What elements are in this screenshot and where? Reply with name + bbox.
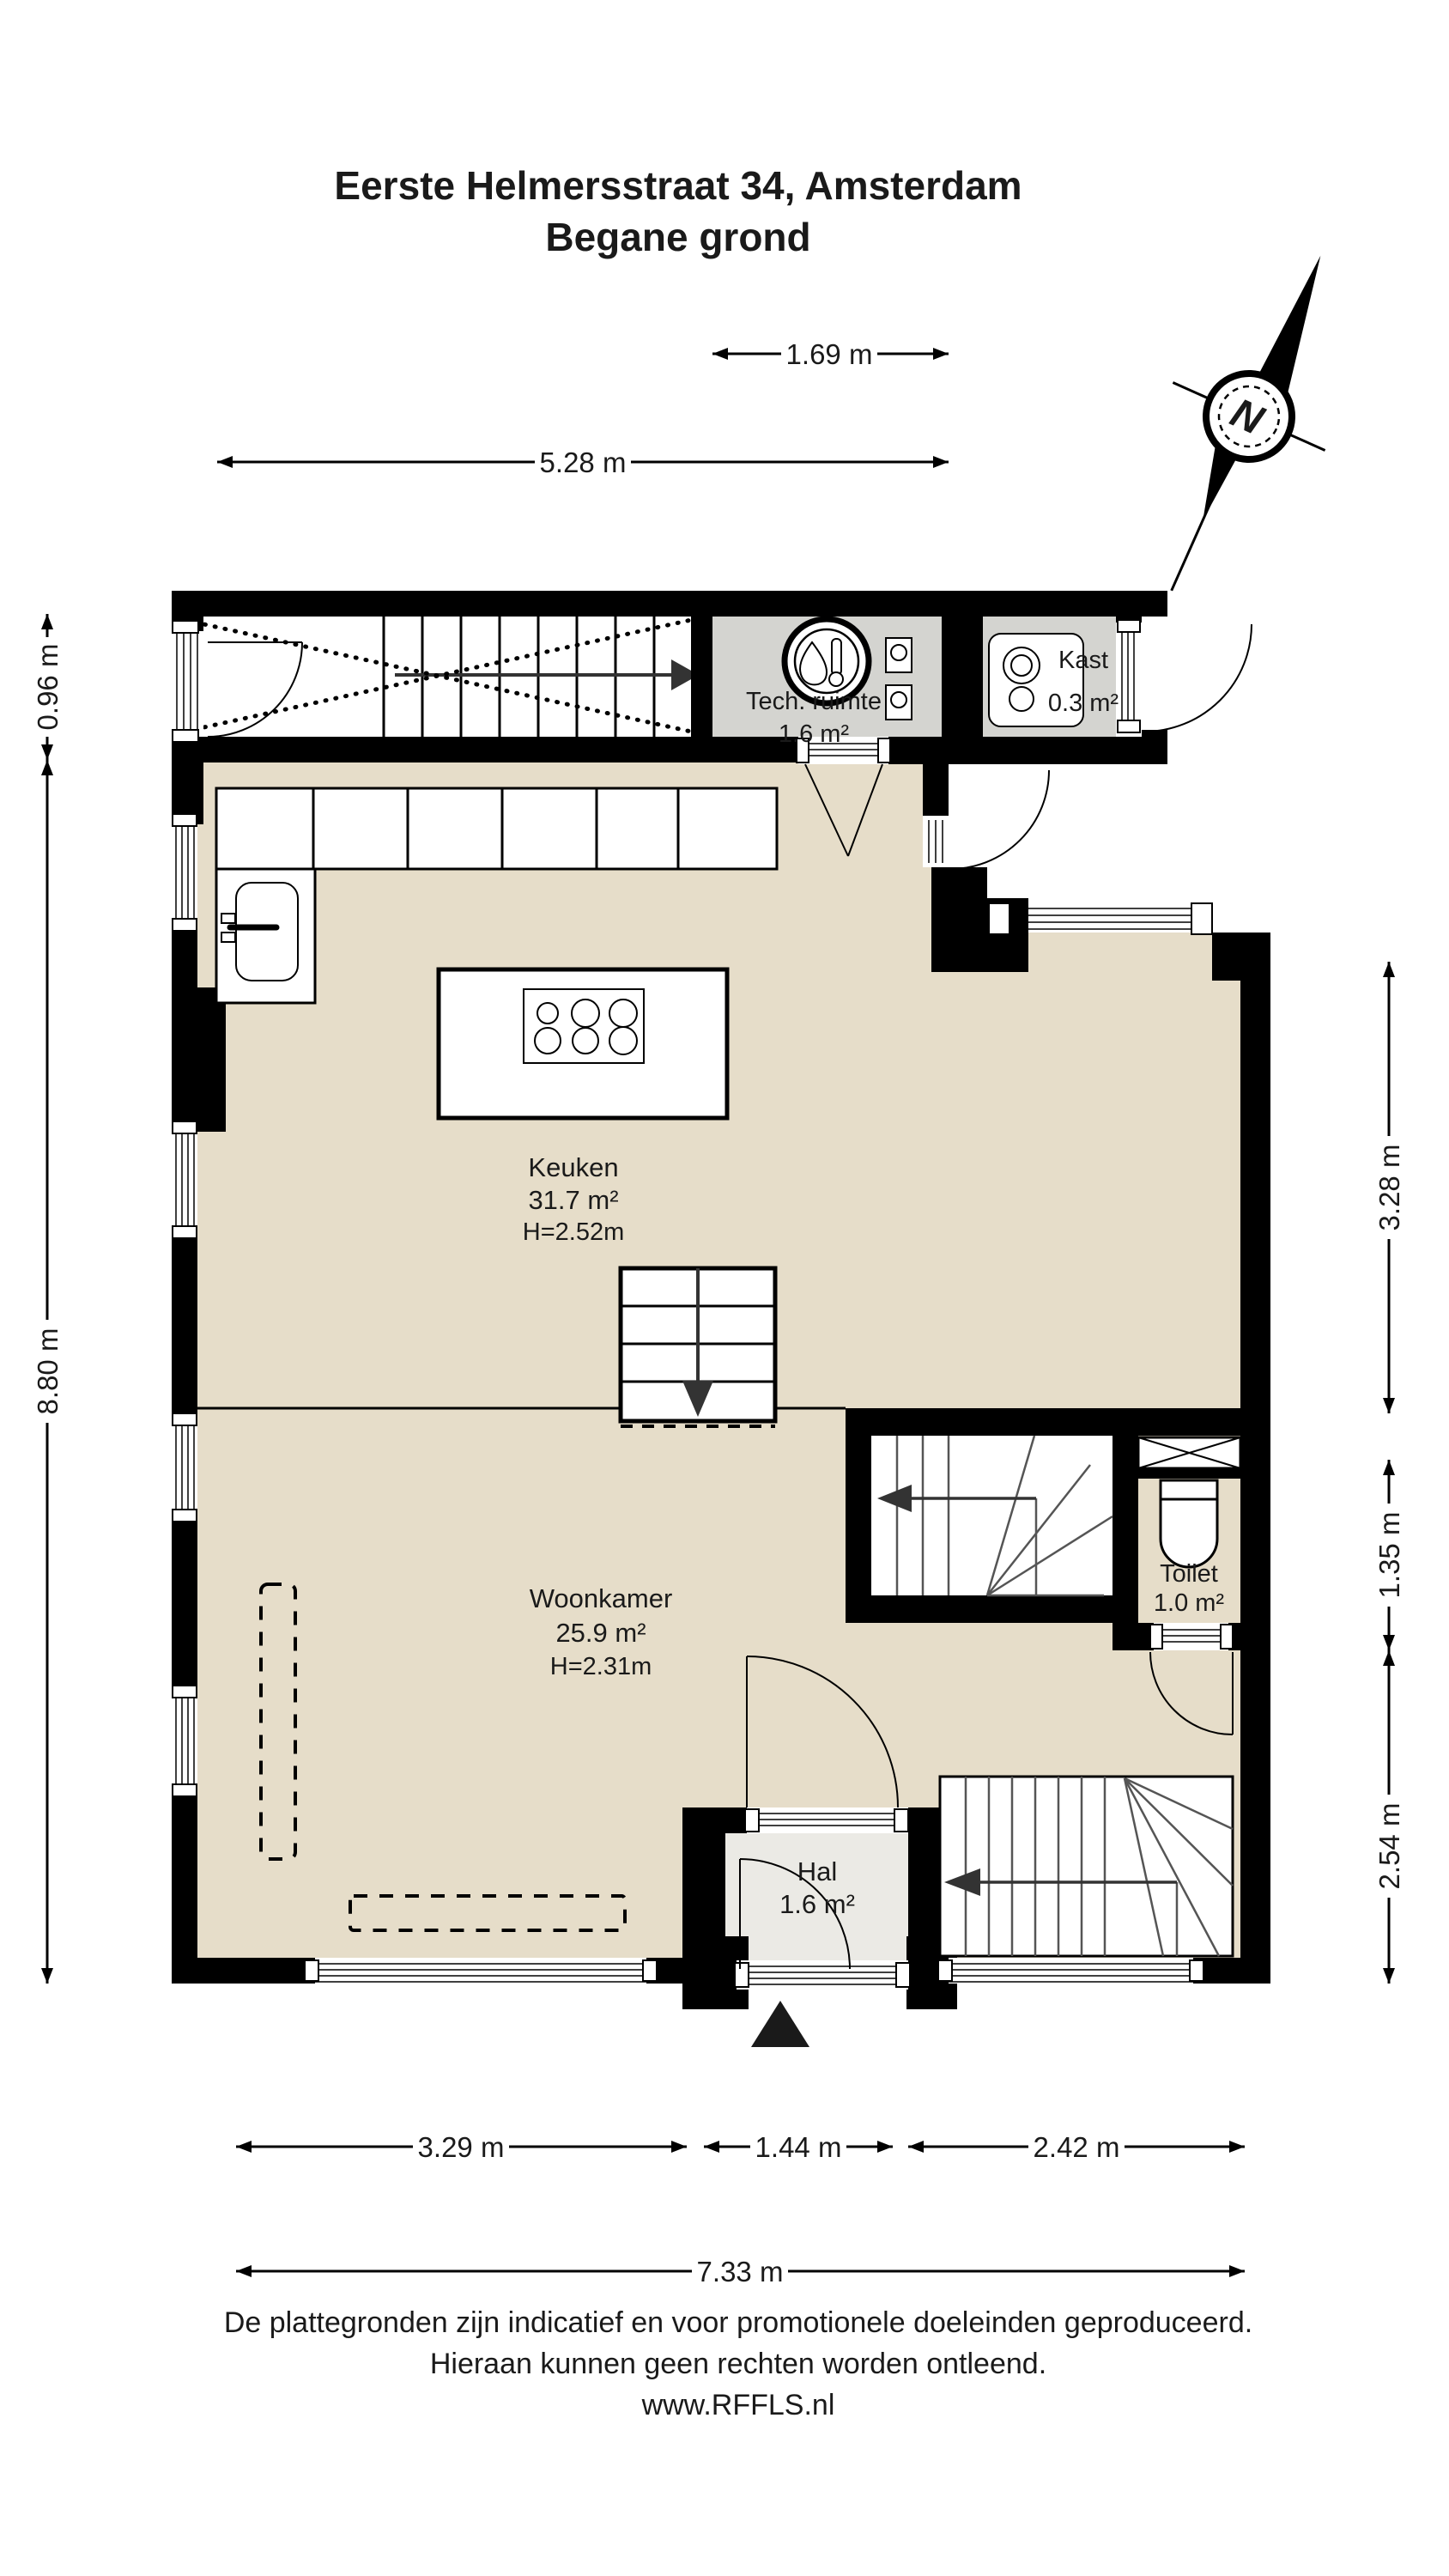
dim-bottom-right: 2.42 m	[1034, 2131, 1120, 2163]
keuken-height: H=2.52m	[523, 1218, 624, 1246]
hal-area: 1.6 m²	[779, 1889, 855, 1919]
footer-disclaimer: De plattegronden zijn indicatief en voor…	[224, 2306, 1252, 2421]
footer-line1: De plattegronden zijn indicatief en voor…	[224, 2306, 1252, 2339]
dim-bottom-left: 3.29 m	[418, 2131, 505, 2163]
thermometer-glyph	[832, 639, 841, 675]
footer-website: www.RFFLS.nl	[641, 2389, 835, 2421]
window-bottom-left	[305, 1958, 657, 1984]
kast-door-arc	[1144, 624, 1252, 732]
compass-axis-line	[1172, 464, 1228, 591]
window-keuken-left-1	[172, 814, 197, 931]
toilet-name: Toilet	[1160, 1560, 1218, 1588]
window-vestibule-left	[172, 621, 203, 742]
keuken-name: Keuken	[528, 1152, 618, 1182]
woonkamer-height: H=2.31m	[550, 1653, 652, 1680]
dim-left-upper: 0.96 m	[32, 644, 64, 731]
stairs-bottom-right	[940, 1777, 1233, 1956]
compass-icon: N	[1095, 222, 1397, 624]
dim-left-overall: 8.80 m	[32, 1328, 64, 1415]
dim-right-middle: 1.35 m	[1373, 1512, 1405, 1599]
window-woonkamer-left-2	[172, 1686, 197, 1796]
kitchen-island	[439, 969, 727, 1118]
right-wing-door-arc	[950, 770, 1049, 869]
window-bottom-right	[938, 1958, 1203, 1984]
page-title: Eerste Helmersstraat 34, Amsterdam Began…	[334, 163, 1022, 259]
tech-ruimte-name: Tech. ruimte	[746, 688, 882, 715]
kast-area: 0.3 m²	[1048, 690, 1119, 717]
floorplan-page: Eerste Helmersstraat 34, Amsterdam Began…	[0, 0, 1449, 2576]
keuken-area: 31.7 m²	[528, 1185, 618, 1215]
dim-bottom-overall: 7.33 m	[697, 2256, 784, 2287]
stairs-middle-winder	[871, 1436, 1113, 1595]
dim-bottom-center: 1.44 m	[755, 2131, 842, 2163]
title-line1: Eerste Helmersstraat 34, Amsterdam	[334, 163, 1022, 208]
window-keuken-left-2	[172, 1121, 197, 1238]
stairs-down-basement	[621, 1268, 775, 1426]
toilet-area: 1.0 m²	[1154, 1589, 1225, 1617]
kast-name: Kast	[1058, 647, 1108, 674]
footer-line2: Hieraan kunnen geen rechten worden ontle…	[430, 2348, 1046, 2380]
dim-right-lower: 2.54 m	[1373, 1803, 1405, 1890]
floorplan-canvas: Eerste Helmersstraat 34, Amsterdam Began…	[0, 0, 1449, 2576]
dim-right-upper: 3.28 m	[1373, 1145, 1405, 1231]
window-woonkamer-left-1	[172, 1413, 197, 1522]
title-line2: Begane grond	[545, 215, 810, 259]
hal-name: Hal	[797, 1856, 838, 1886]
woonkamer-name: Woonkamer	[530, 1583, 673, 1613]
toilet-fixture-icon	[1161, 1480, 1217, 1567]
tech-ruimte-area: 1.6 m²	[779, 720, 850, 748]
kast-door	[1116, 620, 1252, 732]
dim-top-overall: 5.28 m	[540, 447, 627, 478]
woonkamer-area: 25.9 m²	[555, 1618, 646, 1648]
entrance-arrow-marker	[751, 2001, 809, 2047]
dim-top-inner: 1.69 m	[786, 338, 873, 370]
shaft-cross-box	[1138, 1437, 1240, 1468]
